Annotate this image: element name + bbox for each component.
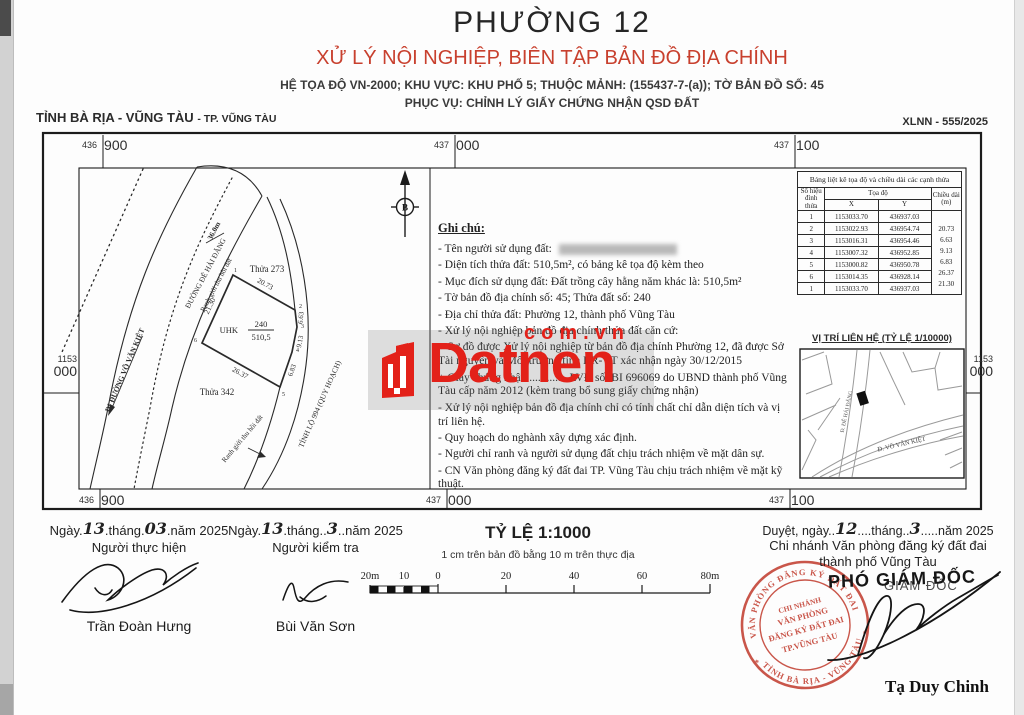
executor-role: Người thực hiện: [34, 540, 244, 555]
handwritten-month: 03: [145, 519, 167, 538]
sketch-labels: ĐƯỜNG ĐÊ HẢI ĐĂNG 36.0m Ranh giới thu hồ…: [102, 219, 343, 464]
page-subtitle: XỬ LÝ NỘI NGHIỆP, BIÊN TẬP BẢN ĐỒ ĐỊA CH…: [122, 47, 982, 70]
scale-tick-6: 80m: [701, 571, 720, 582]
scale-tick-2: 0: [435, 571, 440, 582]
parcel-sketch: [62, 166, 308, 489]
signature-executor: [62, 563, 198, 612]
note-area: - Diện tích thửa đất: 510,5m², có bảng k…: [438, 259, 790, 273]
scale-tick-4: 40: [569, 571, 580, 582]
scale-tick-5: 60: [637, 571, 648, 582]
parcel-type-label: UHK: [220, 325, 239, 335]
scale-tick-0: 20m: [361, 571, 380, 582]
checker-name: Bùi Văn Sơn: [228, 618, 403, 634]
executor-date-line: Ngày.13.tháng.03.năm 2025: [34, 520, 244, 539]
vertex-5: 5: [282, 392, 285, 398]
edge-label-5-6: 26.37: [231, 365, 250, 381]
notes-heading: Ghi chú:: [438, 221, 790, 236]
note-civil-liability: - Người chỉ ranh và người sử dụng đất ch…: [438, 448, 790, 462]
vertex-2: 2: [299, 304, 302, 310]
signature-checker: [283, 581, 348, 601]
edge-label-2-3: 6.63: [296, 311, 305, 325]
note-purpose: - Mục đích sử dụng đất: Đất trồng cây hằ…: [438, 276, 790, 290]
redacted-name: [559, 244, 677, 255]
grid-label-top-2: 437 000: [434, 137, 479, 153]
table-row: 1 1153033.70 436937.03 20.73 6.63 9.13 6…: [798, 211, 962, 223]
scale-title: TỶ LỆ 1:1000: [388, 523, 688, 543]
parcel-number-label: 240: [255, 319, 268, 329]
vertex-6: 6: [194, 338, 197, 344]
handwritten-day: 13: [261, 519, 283, 538]
grid-label-right: 1153 000: [960, 352, 993, 379]
minimap-title: VỊ TRÍ LIÊN HỆ (TỶ LỆ 1/10000): [798, 333, 966, 344]
watermark-logo-icon: [374, 340, 428, 406]
executor-name: Trần Đoàn Hưng: [34, 618, 244, 634]
col-vertex-header: Số hiệu đỉnh thửa: [798, 188, 825, 211]
col-y-header: Y: [878, 199, 931, 211]
location-minimap: Đ. ĐÊ HẢI ĐĂNG Đ. VÕ VĂN KIỆT: [800, 349, 964, 478]
vertex-1: 1: [234, 268, 237, 274]
vertex-3: 3: [301, 324, 304, 330]
grid-label-left: 1153 000: [44, 352, 77, 379]
col-coords-header: Tọa độ: [825, 188, 931, 200]
watermark-domain: com.vn: [524, 322, 630, 345]
vertex-4: 4: [296, 348, 299, 354]
grid-label-bottom-1: 436 900: [79, 492, 124, 508]
coordinate-system-line: HỆ TỌA ĐỘ VN-2000; KHU VỰC: KHU PHỐ 5; T…: [122, 78, 982, 92]
purpose-line: PHỤC VỤ: CHỈNH LÝ GIẤY CHỨNG NHẬN QSD ĐẤ…: [122, 96, 982, 110]
stamp-star-left: *: [754, 657, 761, 668]
north-label: B: [402, 203, 408, 213]
scale-subtitle: 1 cm trên bản đồ bằng 10 m trên thực địa: [388, 549, 688, 561]
director-name: Tạ Duy Chinh: [862, 677, 1012, 697]
scale-tick-3: 20: [501, 571, 512, 582]
vo-van-kiet-label: ĐI ĐƯỜNG VÕ VĂN KIỆT: [102, 326, 146, 413]
parcel-273-label: Thửa 273: [250, 264, 285, 274]
scale-tick-1: 10: [399, 571, 410, 582]
note-map-sheet: - Tờ bản đồ địa chính số: 45; Thửa đất s…: [438, 292, 790, 306]
checker-role: Người kiểm tra: [228, 540, 403, 555]
cadastral-document-page: B ĐƯỜNG: [0, 0, 1024, 715]
edge-label-3-4: 9.13: [295, 334, 305, 348]
note-land-user: - Tên người sử dụng đất:: [438, 243, 790, 257]
document-number: XLNN - 555/2025: [830, 116, 988, 128]
province-caption: TỈNH BÀ RỊA - VŨNG TÀU - TP. VŨNG TÀU: [36, 110, 276, 125]
handwritten-month: 3: [327, 519, 338, 538]
edge-lengths-cell: 20.73 6.63 9.13 6.83 26.37 21.30: [931, 211, 961, 295]
note-planning: - Quy hoạch do nghành xây dựng xác định.: [438, 432, 790, 446]
handwritten-month: 3: [910, 519, 921, 538]
tl994-label: TỈNH LỘ 994 (QUY HOẠCH): [296, 358, 344, 449]
checker-date-line: Ngày.13.tháng..3..năm 2025: [228, 520, 403, 539]
approval-date-line: Duyệt, ngày..12....tháng..3.....năm 2025: [747, 520, 1009, 539]
grid-label-top-1: 436 900: [82, 137, 127, 153]
table-title: Bảng liệt kê tọa độ và chiều dài các cạn…: [798, 172, 962, 188]
document-header: PHƯỜNG 12 XỬ LÝ NỘI NGHIỆP, BIÊN TẬP BẢN…: [122, 6, 982, 110]
page-title: PHƯỜNG 12: [122, 6, 982, 40]
approval-org-line1: Chi nhánh Văn phòng đăng ký đất đai: [747, 538, 1009, 553]
note-technical-liability: - CN Văn phòng đăng ký đất đai TP. Vũng …: [438, 465, 790, 493]
handwritten-day: 12: [835, 519, 857, 538]
watermark: Datnen com.vn: [366, 320, 658, 416]
col-x-header: X: [825, 199, 878, 211]
handwritten-day: 13: [83, 519, 105, 538]
scale-bar: 20m 10 0 20 40 60 80m: [361, 571, 720, 593]
col-length-header: Chiều dài (m): [931, 188, 961, 211]
city-caption: - TP. VŨNG TÀU: [197, 113, 276, 125]
parcel-area-label: 510,5: [251, 332, 270, 342]
north-arrow: B: [391, 170, 419, 237]
coordinate-table: Bảng liệt kê tọa độ và chiều dài các cạn…: [797, 171, 962, 295]
parcel-342-label: Thửa 342: [200, 387, 235, 397]
grid-label-top-3: 437 100: [774, 137, 819, 153]
